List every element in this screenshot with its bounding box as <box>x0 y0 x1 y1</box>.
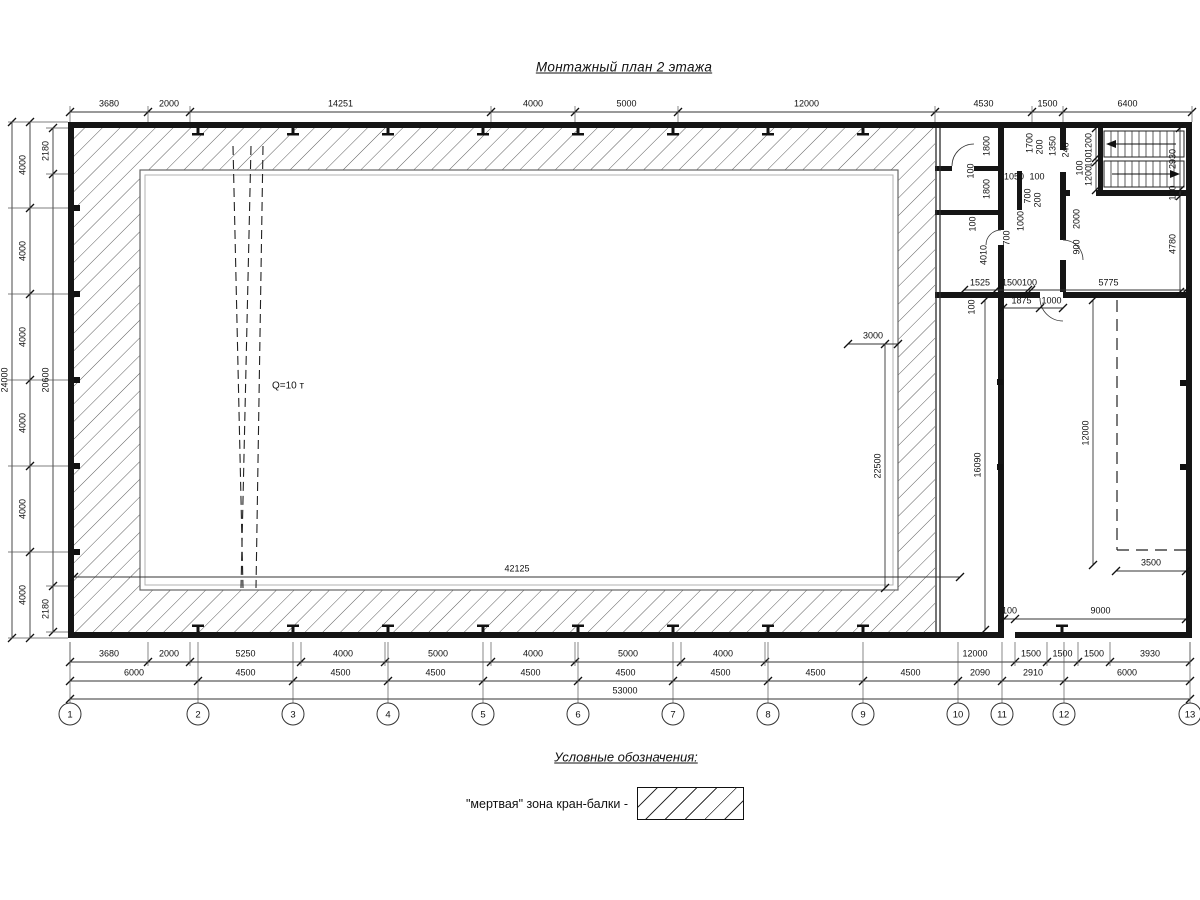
svg-text:11: 11 <box>997 710 1007 721</box>
axis-bubble: 7 <box>662 703 684 725</box>
svg-text:2: 2 <box>195 710 200 721</box>
axis-bubble: 10 <box>947 703 969 725</box>
svg-text:9: 9 <box>860 710 865 721</box>
axis-bubble: 4 <box>377 703 399 725</box>
axis-bubble: 8 <box>757 703 779 725</box>
svg-text:6: 6 <box>575 710 580 721</box>
svg-text:1: 1 <box>67 710 72 721</box>
svg-text:3: 3 <box>290 710 295 721</box>
axis-bubble: 13 <box>1179 703 1200 725</box>
svg-text:12: 12 <box>1059 710 1070 721</box>
svg-text:5: 5 <box>480 710 485 721</box>
axis-bubble: 2 <box>187 703 209 725</box>
axis-bubble: 12 <box>1053 703 1075 725</box>
svg-text:13: 13 <box>1185 710 1196 721</box>
svg-text:10: 10 <box>953 710 964 721</box>
svg-text:8: 8 <box>765 710 770 721</box>
axis-bubble: 6 <box>567 703 589 725</box>
svg-text:7: 7 <box>670 710 675 721</box>
floor-plan-drawing: 12345678910111213 <box>0 0 1200 900</box>
axis-bubble: 3 <box>282 703 304 725</box>
axis-bubble: 9 <box>852 703 874 725</box>
drawing-sheet: Монтажный план 2 этажа 12345678910111213… <box>0 0 1200 900</box>
axis-bubble: 5 <box>472 703 494 725</box>
svg-text:4: 4 <box>385 710 390 721</box>
axis-bubble: 1 <box>59 703 81 725</box>
axis-bubble: 11 <box>991 703 1013 725</box>
